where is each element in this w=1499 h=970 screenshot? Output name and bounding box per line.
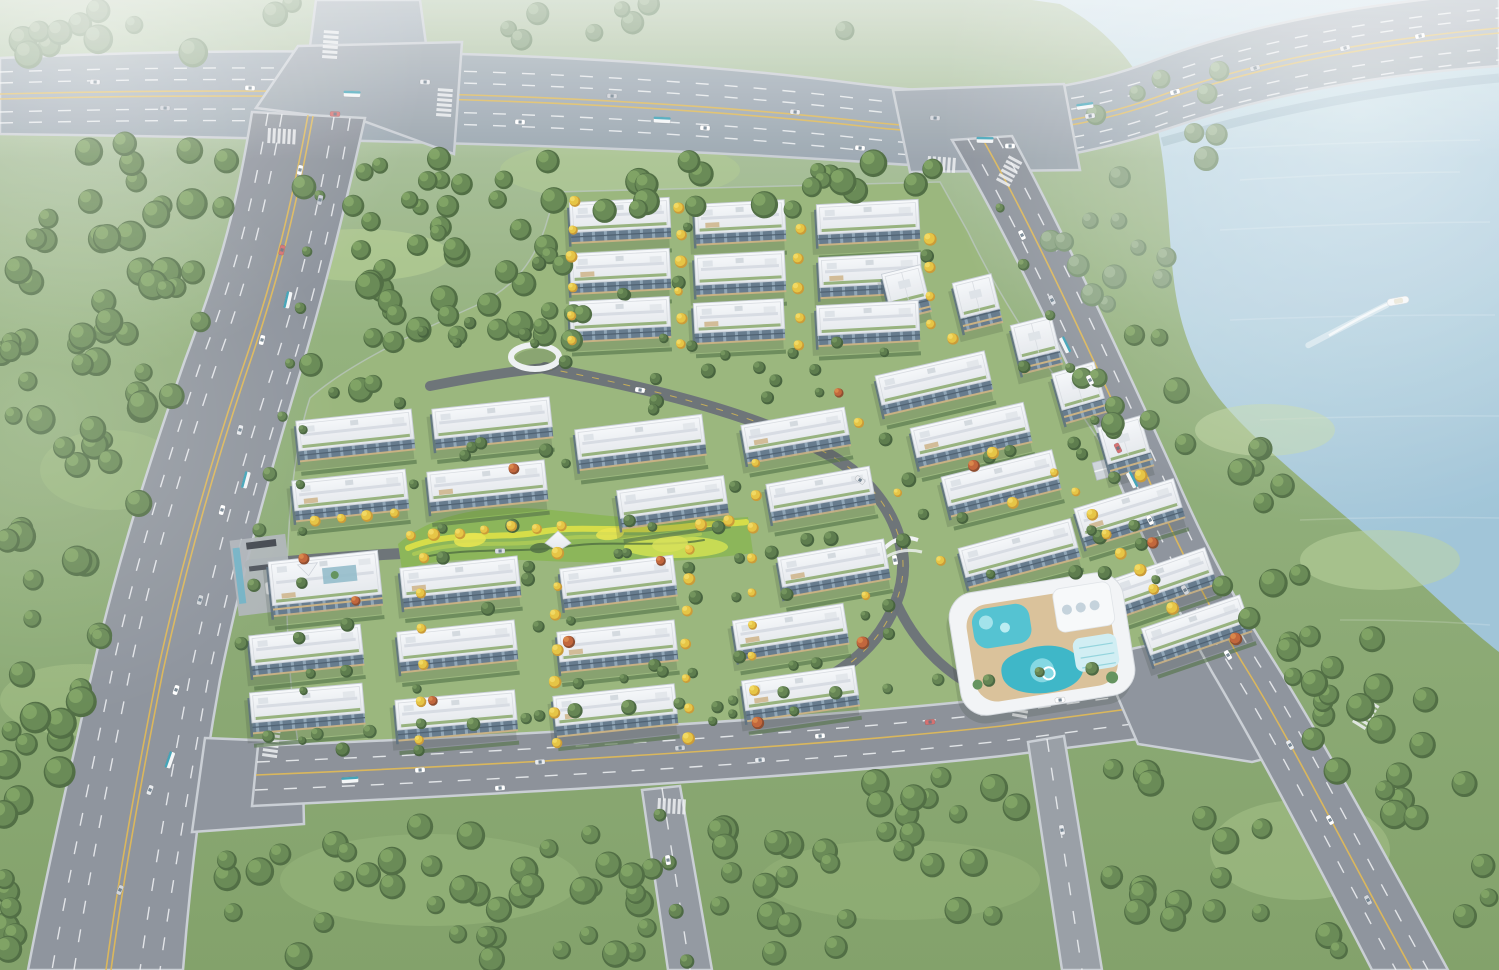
atmosphere-haze-layer — [0, 0, 1499, 970]
rendered-scene — [0, 0, 1499, 970]
haze-veil — [0, 0, 1499, 970]
aerial-site-render — [0, 0, 1499, 970]
